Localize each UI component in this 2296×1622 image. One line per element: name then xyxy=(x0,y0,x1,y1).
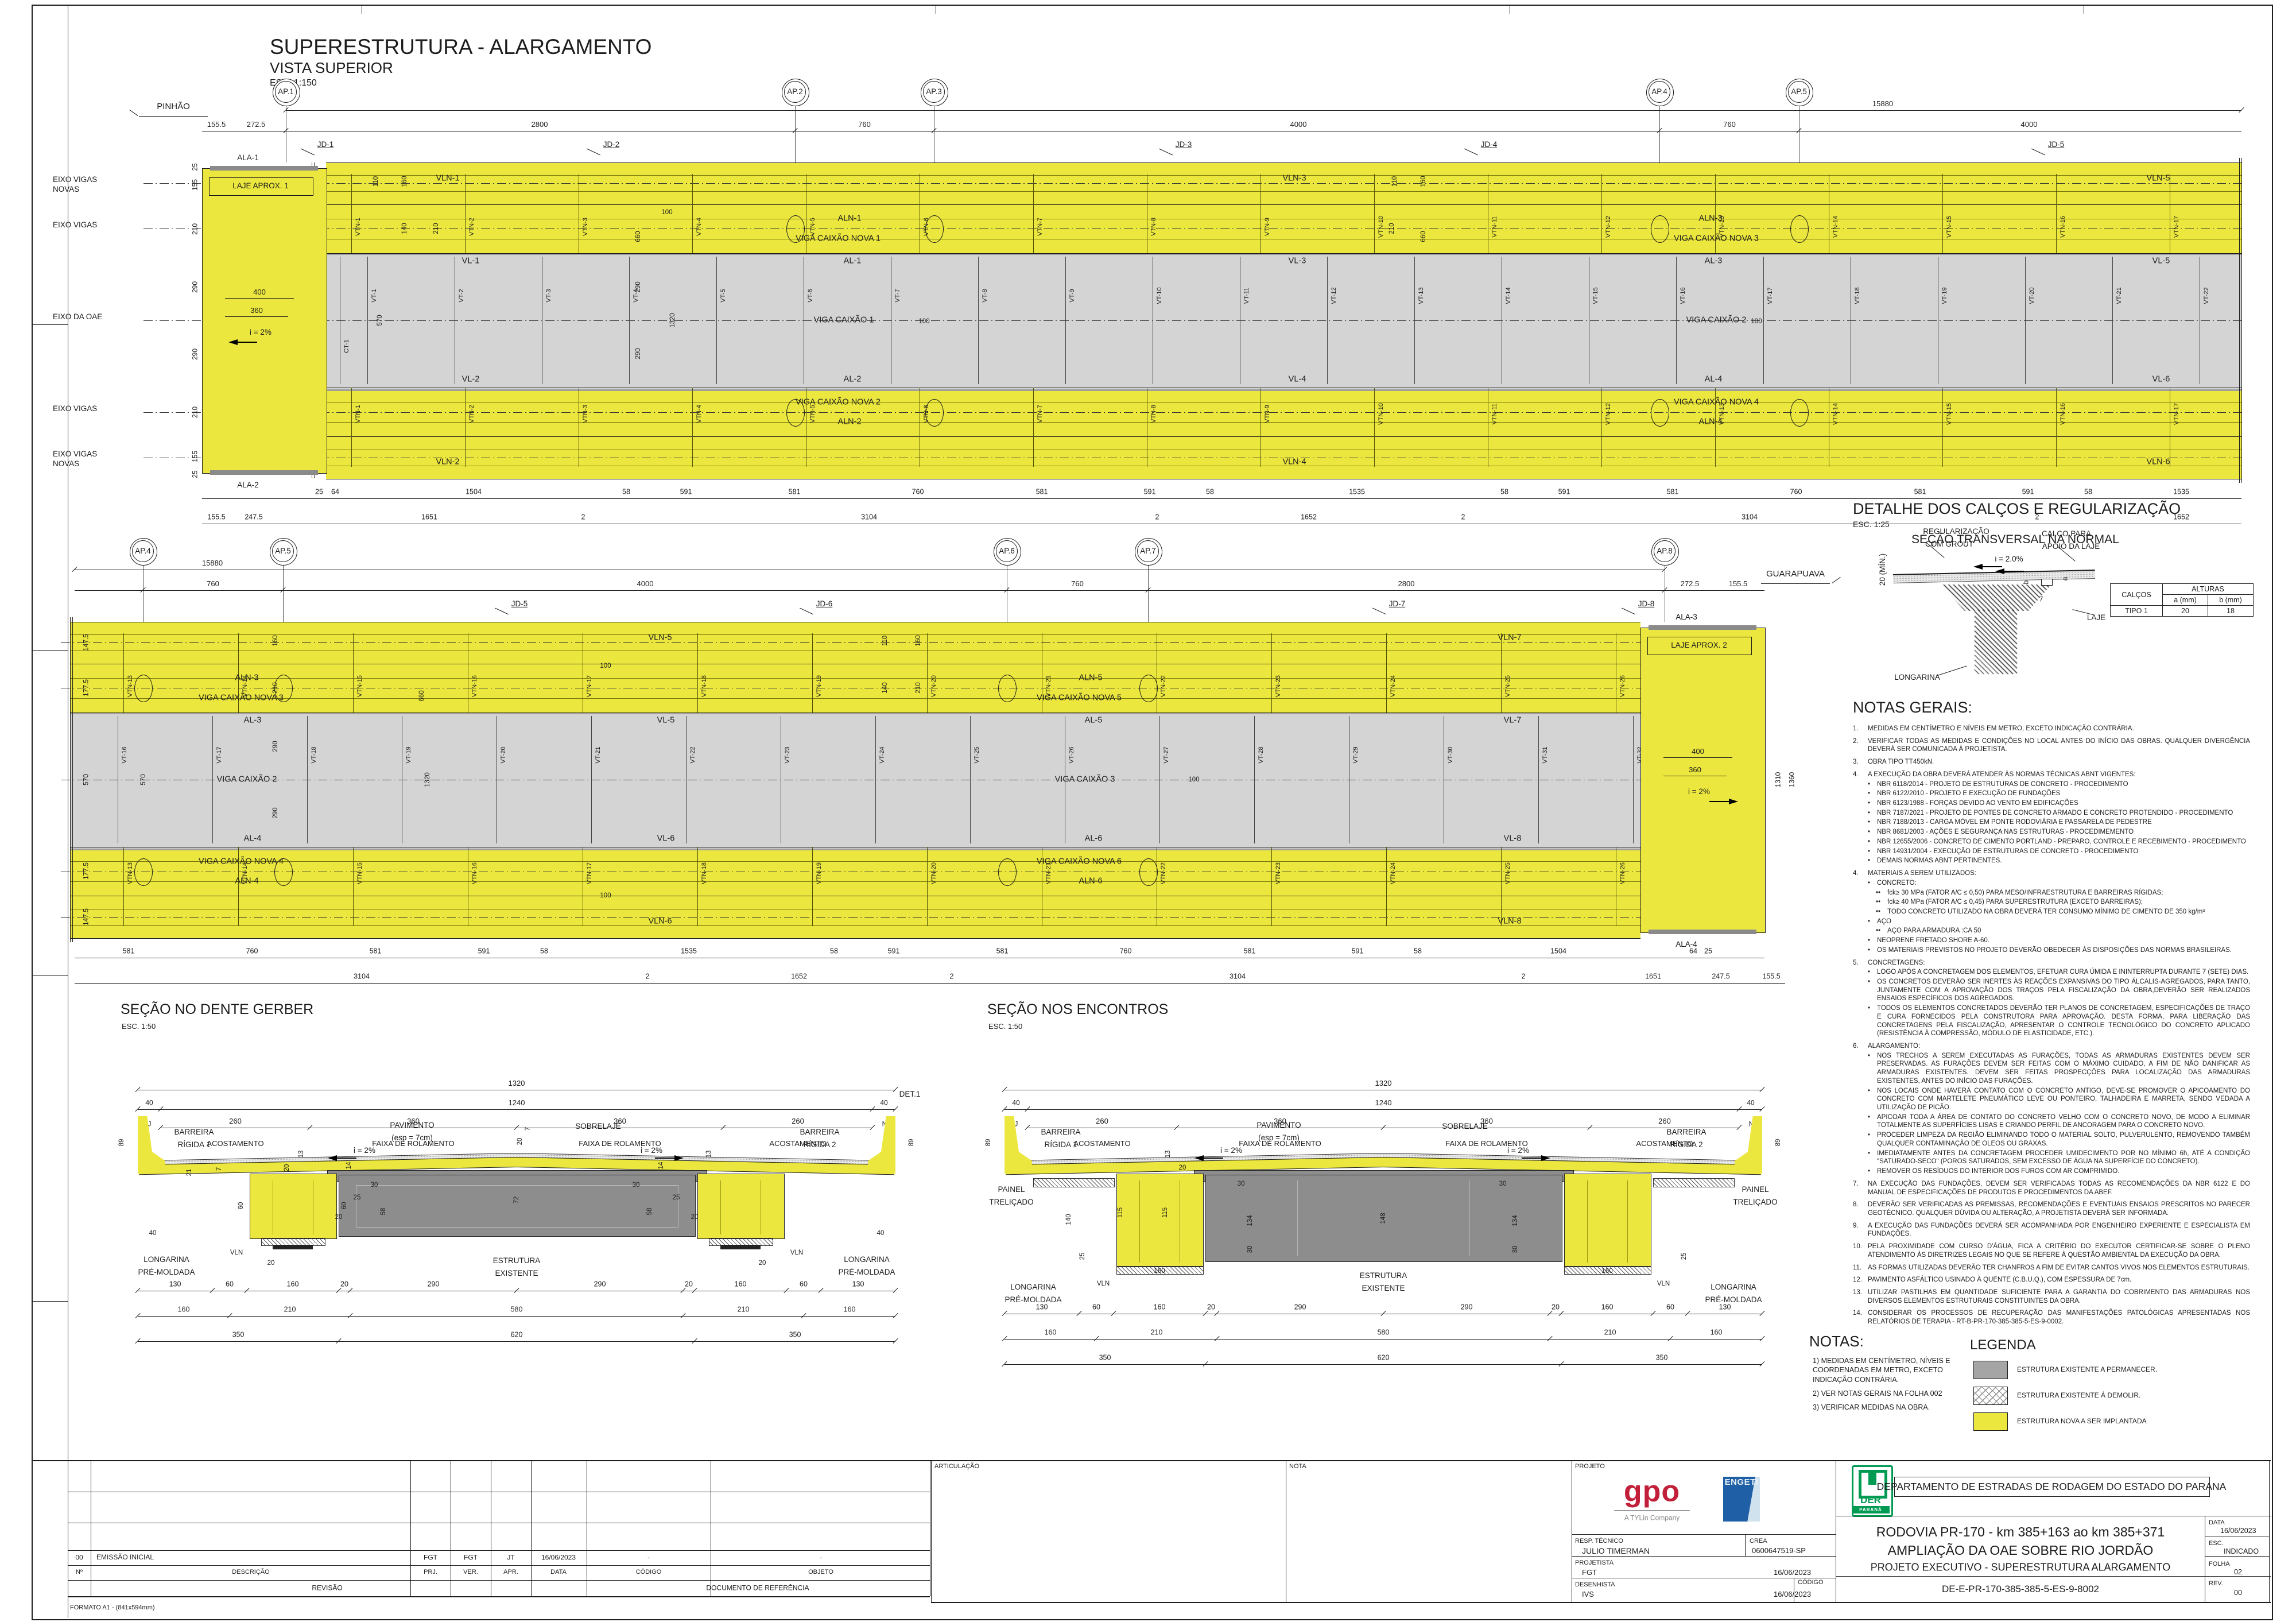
transverse-beam-label: VTN-20 xyxy=(931,675,938,697)
note-number: 10. xyxy=(1853,1242,1862,1251)
line xyxy=(1007,565,1007,622)
line xyxy=(32,650,68,651)
dim-label: 110 xyxy=(1391,176,1398,187)
line xyxy=(202,524,2241,524)
line xyxy=(283,565,284,622)
note-number: 3. xyxy=(1853,758,1859,767)
line xyxy=(686,716,687,843)
line xyxy=(68,1565,930,1566)
line xyxy=(2170,388,2170,467)
line xyxy=(2084,5,2084,14)
line xyxy=(1147,388,1147,467)
girder-label: VL-1 xyxy=(462,257,480,265)
dim-label: 760 xyxy=(1120,947,1132,955)
transverse-beam-label: VTN-3 xyxy=(583,218,589,236)
legenda-heading: LEGENDA xyxy=(1970,1338,2036,1353)
dim-label: 660 xyxy=(1420,231,1427,242)
dim-label: 400 xyxy=(1692,748,1704,756)
dim-label: 591 xyxy=(1144,488,1156,495)
line xyxy=(2056,174,2057,253)
transverse-beam-label: VTN-16 xyxy=(472,862,479,884)
transverse-beam-label: VTN-24 xyxy=(1390,862,1397,884)
line xyxy=(1261,174,1261,253)
section-label: PRÉ-MOLDADA xyxy=(138,1268,195,1276)
transverse-beam-label: VT-7 xyxy=(895,289,902,302)
bullet-marker: • xyxy=(1868,838,1870,846)
note-text: PAVIMENTO ASFÁLTICO USINADO À QUENTE (C.… xyxy=(1868,1276,2131,1283)
axis-dashdot xyxy=(61,642,1640,643)
line xyxy=(1139,1180,1140,1263)
transverse-beam-label: VTN-25 xyxy=(1505,862,1512,884)
line xyxy=(934,106,934,162)
line xyxy=(1180,1180,1180,1263)
dim-label: 100 xyxy=(1188,776,1199,783)
note-bullet: •NEOPRENE FRETADO SHORE A-60. xyxy=(1868,936,2250,945)
bullet-text: CONCRETO: xyxy=(1877,880,1917,887)
line xyxy=(286,110,2241,111)
bullet-marker: • xyxy=(1868,1052,1870,1060)
line xyxy=(587,1580,587,1596)
section-label: ESTRUTURA xyxy=(1360,1272,1407,1280)
ala-label: ALA-2 xyxy=(237,481,259,489)
abutment xyxy=(202,168,327,474)
note-number: 6. xyxy=(1853,1042,1859,1051)
dim-label: 2800 xyxy=(1398,580,1415,588)
girder-label: ALN-5 xyxy=(1079,673,1102,682)
line xyxy=(812,847,813,926)
line xyxy=(697,633,698,713)
dim-label: 4000 xyxy=(637,580,654,588)
bearing-ellipse xyxy=(1651,215,1669,243)
note-number: 4. xyxy=(1853,869,1859,878)
girder-label: VIGA CAIXÃO NOVA 3 xyxy=(199,694,284,702)
girder-label: VLN-2 xyxy=(436,458,459,466)
general-note: 10.PELA PROXIMIDADE COM CURSO D'ÁGUA, FI… xyxy=(1853,1242,2250,1259)
dim-label: 400 xyxy=(253,288,266,296)
line xyxy=(367,257,368,384)
girder-label: VLN-7 xyxy=(1498,633,1521,642)
girder-label: VLN-4 xyxy=(1282,458,1306,466)
dim-label: 581 xyxy=(1036,488,1048,495)
line xyxy=(692,174,693,253)
girder-label: VIGA CAIXÃO NOVA 5 xyxy=(1037,694,1122,702)
line xyxy=(70,634,1640,635)
bullet-marker: • xyxy=(1868,936,1870,945)
dim-label: 160 xyxy=(178,1306,190,1313)
girder-label: VIGA CAIXÃO NOVA 1 xyxy=(796,234,881,243)
dim-label: 760 xyxy=(207,580,219,588)
line xyxy=(465,388,466,467)
line xyxy=(70,678,1640,679)
dim-label: 58 xyxy=(2084,488,2092,495)
transverse-beam-label: VTN-8 xyxy=(1151,218,1158,236)
dim-label: 290 xyxy=(272,741,279,752)
transverse-beam-label: VT-22 xyxy=(690,746,697,763)
line xyxy=(1745,1534,1746,1556)
dim-label: 1320 xyxy=(669,313,676,328)
line xyxy=(1502,257,1502,384)
dim-label: 160 xyxy=(1154,1268,1165,1275)
bearing-ellipse xyxy=(1651,399,1669,427)
dim-label: 591 xyxy=(888,947,900,955)
dim-label: 290 xyxy=(428,1280,440,1288)
jd-label: JD-5 xyxy=(511,600,528,608)
dim-label: VLN xyxy=(790,1249,803,1256)
dim-label: 2 xyxy=(950,973,954,980)
transverse-beam-label: VT-17 xyxy=(216,746,223,763)
section-label: LONGARINA xyxy=(143,1256,189,1264)
girder-label: VLN-5 xyxy=(648,633,672,642)
detail-stem xyxy=(1975,610,2017,674)
dim-label: 60 xyxy=(1666,1303,1674,1311)
dim-label: 290 xyxy=(1294,1303,1306,1311)
bullet-text: NBR 6122/2010 - PROJETO E EXECUÇÃO DE FU… xyxy=(1877,790,2060,797)
transverse-beam-label: VTN-15 xyxy=(357,675,364,697)
dim-label: 89 xyxy=(1775,1139,1782,1147)
dim-label: 89 xyxy=(985,1139,992,1147)
dim-label: 130 xyxy=(1036,1303,1048,1311)
line xyxy=(402,716,402,843)
note-bullet: •IMEDIATAMENTE ANTES DA CONCRETAGEM PROC… xyxy=(1868,1149,2250,1166)
dim-label: 570 xyxy=(83,774,90,785)
ala-label: ALA-3 xyxy=(1676,613,1697,621)
line xyxy=(711,1460,711,1596)
dim-label: 30 xyxy=(633,1182,640,1189)
dim-label: 110 xyxy=(373,176,379,187)
line xyxy=(1572,1556,1836,1557)
direction-label: GUARAPUAVA xyxy=(1766,570,1825,579)
dim-label: 60 xyxy=(800,1280,808,1288)
transverse-beam-label: VTN-17 xyxy=(2174,403,2181,425)
pier-label: AP.8 xyxy=(1657,547,1673,555)
dim-label: 60 xyxy=(341,1202,348,1210)
jd-label: JD-8 xyxy=(1638,600,1655,608)
section-label: BARREIRA xyxy=(1041,1128,1080,1136)
titleblock-top xyxy=(33,1460,2271,1461)
slope-arrow-line xyxy=(655,1158,676,1159)
girder-label: VLN-1 xyxy=(436,174,459,183)
bearing-ellipse xyxy=(1139,675,1158,702)
girder-label: ALN-3 xyxy=(1698,214,1722,223)
transverse-beam-label: VTN-1 xyxy=(355,218,362,236)
girder-label: VLN-5 xyxy=(2146,174,2170,183)
girder-label: VL-6 xyxy=(2152,375,2170,384)
note-text: VERIFICAR TODAS AS MEDIDAS E CONDIÇÕES N… xyxy=(1868,738,2250,753)
dim-label: 58 xyxy=(1500,488,1508,495)
section-label: BARREIRA xyxy=(800,1128,839,1136)
line xyxy=(697,847,698,926)
line xyxy=(1261,388,1261,467)
detail-label: COM GROUT xyxy=(1925,540,1973,548)
line xyxy=(920,388,920,467)
line xyxy=(1663,757,1732,758)
section-label: EXISTENTE xyxy=(495,1269,538,1278)
jd-label: JD-5 xyxy=(2048,141,2065,149)
pier-label: AP.5 xyxy=(1791,88,1807,96)
dim-label: 160 xyxy=(1420,176,1427,187)
section-label: SOBRELAJE xyxy=(1442,1122,1488,1131)
dim-label: 40 xyxy=(880,1100,887,1107)
girder-label: AL-3 xyxy=(1705,257,1723,265)
dim-label: 15880 xyxy=(1872,100,1893,108)
dim-label: 760 xyxy=(858,121,871,129)
line xyxy=(202,131,2241,131)
axis-label: EIXO VIGAS xyxy=(53,175,97,184)
line xyxy=(326,253,2241,254)
dim-label: 260 xyxy=(1096,1117,1108,1125)
dim-label: 160 xyxy=(401,176,408,187)
abutment-slab-edge xyxy=(210,470,318,475)
section-label: PAVIMENTO xyxy=(1256,1121,1301,1129)
line xyxy=(1829,388,1829,467)
line xyxy=(1414,257,1415,384)
margin-line xyxy=(68,5,68,1618)
bullet-text: NBR 6123/1988 - FORÇAS DEVIDO AO VENTO E… xyxy=(1877,800,2078,807)
line xyxy=(2241,158,2242,483)
note-bullet: •LOGO APÓS A CONCRETAGEM DOS ELEMENTOS, … xyxy=(1868,968,2250,977)
abutment-slab-edge xyxy=(1649,625,1756,630)
legend-label: ESTRUTURA NOVA A SER IMPLANTADA xyxy=(2017,1417,2147,1425)
transverse-beam-label: VTN-12 xyxy=(1605,216,1612,238)
general-note: 4.A EXECUÇÃO DA OBRA DEVERÁ ATENDER ÀS N… xyxy=(1853,771,2250,865)
dim-label: 13 xyxy=(1165,1151,1172,1158)
dim-label: 1535 xyxy=(2173,488,2189,495)
line xyxy=(1004,1339,1762,1340)
line xyxy=(2200,257,2200,384)
note-text: OBRA TIPO TT450kN. xyxy=(1868,758,1934,765)
line xyxy=(781,716,781,843)
dim-label: 140 xyxy=(401,223,408,234)
dim-label: 20 xyxy=(1552,1303,1560,1311)
existing-structure-band xyxy=(326,253,2241,391)
dim-label: 130 xyxy=(169,1280,181,1288)
dim-label: 100 xyxy=(1751,318,1762,325)
section-label: PRÉ-MOLDADA xyxy=(1705,1296,1762,1304)
dim-label: 591 xyxy=(680,488,692,495)
line xyxy=(70,713,1640,713)
bullet-marker: •• xyxy=(1876,908,1880,916)
slope-arrow-line xyxy=(1203,1158,1223,1159)
axis-dashdot xyxy=(143,183,2241,184)
dim-label: 160 xyxy=(1601,1303,1614,1311)
dim-label: 591 xyxy=(1352,947,1364,955)
transverse-beam-label: VTN-24 xyxy=(1390,675,1397,697)
pier-label: AP.1 xyxy=(278,88,294,96)
girder-label: VIGA CAIXÃO 2 xyxy=(217,775,277,784)
axis-dashdot xyxy=(143,320,2241,321)
transverse-beam-label: VTN-7 xyxy=(1037,218,1044,236)
slope-label: i = 2% xyxy=(1220,1147,1242,1155)
line xyxy=(138,1090,895,1090)
dim-label: 7 xyxy=(525,1127,532,1131)
laje-aprox-label: LAJE APROX. 2 xyxy=(1671,641,1727,649)
calcos-table: CALÇOS ALTURAS a (mm) b (mm) TIPO 1 20 1… xyxy=(2110,583,2254,617)
transverse-beam-label: VT-16 xyxy=(122,746,129,763)
bullet-marker: • xyxy=(1868,780,1870,789)
detail-label: CALÇO PARA xyxy=(2042,530,2091,538)
transverse-beam-label: VTN-14 xyxy=(1833,216,1840,238)
dim-label: 25 xyxy=(315,488,323,495)
girder-label: VIGA CAIXÃO 1 xyxy=(814,316,874,324)
transverse-beam-label: VT-19 xyxy=(406,746,413,763)
dim-label: 581 xyxy=(123,947,135,955)
dim-label: 155 xyxy=(192,179,199,191)
dim-label: 30 xyxy=(1499,1180,1507,1187)
bullet-marker: • xyxy=(1868,1131,1870,1140)
dim-label: 272.5 xyxy=(247,121,266,129)
transverse-beam-label: VTN-19 xyxy=(816,862,823,884)
dim-label: 570 xyxy=(140,774,147,785)
pier-label: AP.6 xyxy=(999,547,1015,555)
line xyxy=(583,633,583,713)
dim-label: 14 xyxy=(346,1162,352,1170)
transverse-beam-label: VT-27 xyxy=(1163,746,1170,763)
line xyxy=(1286,1460,1286,1602)
line xyxy=(138,1341,895,1342)
dim-label: 64 xyxy=(1689,947,1697,955)
girder-label: VIGA CAIXÃO NOVA 4 xyxy=(1674,398,1759,407)
line xyxy=(70,698,1640,699)
note-bullet: ••AÇO PARA ARMADURA :CA 50 xyxy=(1868,927,2250,935)
line xyxy=(1271,847,1272,926)
dim-label: 580 xyxy=(511,1306,523,1313)
ala-label: ALA-1 xyxy=(237,154,259,162)
transverse-beam-label: VT-23 xyxy=(785,746,792,763)
line xyxy=(1572,1534,1836,1535)
slope-label: i = 2% xyxy=(250,328,272,336)
line xyxy=(930,1460,930,1596)
dim-label: 260 xyxy=(1658,1117,1671,1125)
dim-label: 89 xyxy=(118,1139,125,1147)
transverse-beam-label: VTN-15 xyxy=(357,862,364,884)
bullet-text: OS MATERIAIS PREVISTOS NO PROJETO DEVERÃ… xyxy=(1877,947,2232,954)
dim-label: 100 xyxy=(600,663,611,669)
axis-label: EIXO VIGAS xyxy=(53,450,97,458)
dim-label: 20 xyxy=(691,1214,699,1221)
bullet-marker: •• xyxy=(1876,898,1880,907)
line xyxy=(1147,174,1147,253)
note-number: 7. xyxy=(1853,1180,1859,1189)
bullet-marker: • xyxy=(1868,879,1870,888)
dim-label: 155.5 xyxy=(207,121,226,129)
section-label: PAINEL xyxy=(998,1186,1025,1194)
line xyxy=(2112,257,2113,384)
detail-title: DETALHE DOS CALÇOS E REGULARIZAÇÃO xyxy=(1853,501,2181,518)
dim-label: 160 xyxy=(1711,1329,1723,1336)
transverse-beam-label: VTN-22 xyxy=(1161,675,1168,697)
detail-label: LONGARINA xyxy=(1894,673,1940,682)
detail-label: 20 (MÍN.) xyxy=(1879,553,1887,586)
dim-label: 60 xyxy=(226,1280,234,1288)
dim-label: 147.5 xyxy=(83,908,90,926)
dim-label: 2 xyxy=(1461,513,1465,521)
dim-label: 40 xyxy=(145,1100,153,1107)
line xyxy=(138,1109,895,1110)
bullet-text: REMOVER OS RESÍDUOS DO INTERIOR DOS FURO… xyxy=(1877,1168,2119,1175)
section-label: TRELIÇADO xyxy=(989,1198,1033,1206)
dim-label: 3104 xyxy=(1230,973,1246,980)
dim-label: 115 xyxy=(1117,1207,1124,1218)
line xyxy=(225,316,288,317)
note-number: 2. xyxy=(1853,737,1859,746)
dim-label: 40 xyxy=(1012,1100,1019,1107)
slope-arrow-line xyxy=(1981,566,2002,567)
girder-label: AL-6 xyxy=(1085,834,1103,843)
transverse-beam-label: VT-24 xyxy=(879,746,886,763)
transverse-beam-label: VTN-11 xyxy=(1492,216,1499,237)
girder-label: VIGA CAIXÃO 2 xyxy=(1686,316,1747,324)
dim-label: 7 xyxy=(216,1167,223,1171)
bullet-text: NBR 12655/2006 - CONCRETO DE CIMENTO POR… xyxy=(1877,838,2246,845)
bullet-text: NBR 7187/2021 - PROJETO DE PONTES DE CON… xyxy=(1877,810,2233,816)
abutment xyxy=(1640,628,1766,933)
dim-label: 1320 xyxy=(1375,1079,1392,1087)
dim-label: 2 xyxy=(1522,973,1526,980)
girder-label: AL-1 xyxy=(844,257,862,265)
line xyxy=(591,716,592,843)
dim-label: 155 xyxy=(192,451,199,462)
dim-label: 581 xyxy=(996,947,1009,955)
line xyxy=(978,257,979,384)
jd-label: JD-2 xyxy=(603,141,620,149)
dim-label: 4000 xyxy=(2021,121,2038,129)
dim-label: 58 xyxy=(380,1208,387,1215)
line xyxy=(497,716,497,843)
axis-dashdot xyxy=(61,917,1640,918)
bearing-ellipse xyxy=(134,858,153,886)
dim-label: 177.5 xyxy=(83,862,90,880)
line xyxy=(1676,257,1677,384)
note-number: 14. xyxy=(1853,1309,1862,1318)
line xyxy=(1065,257,1066,384)
transverse-beam-label: VTN-5 xyxy=(810,405,817,423)
line xyxy=(2239,158,2240,483)
line xyxy=(1469,1180,1470,1256)
dim-label: 2 xyxy=(2035,513,2039,521)
bullet-marker: •• xyxy=(1876,927,1880,935)
note-number: 5. xyxy=(1853,959,1859,967)
line xyxy=(931,1602,2271,1603)
line xyxy=(1633,716,1634,843)
dim-label: 30 xyxy=(1512,1246,1519,1253)
notas-gerais-heading: NOTAS GERAIS: xyxy=(1853,699,1972,717)
line xyxy=(1627,1180,1628,1263)
dim-label: 14 xyxy=(658,1162,665,1170)
dim-label: 89 xyxy=(908,1139,915,1147)
section-label: SOBRELAJE xyxy=(575,1122,621,1131)
bullet-text: NEOPRENE FRETADO SHORE A-60. xyxy=(1877,937,1989,944)
bullet-text: PROCEDER LIMPEZA DA REGIÃO ELIMINANDO TO… xyxy=(1877,1132,2250,1147)
bullet-marker: • xyxy=(1868,1004,1870,1013)
notas-gerais-list: 1.MEDIDAS EM CENTÍMETRO E NÍVEIS EM METR… xyxy=(1853,725,2250,1330)
bullet-text: AÇO xyxy=(1877,918,1891,925)
line xyxy=(326,402,2241,402)
line xyxy=(70,664,1640,664)
dim-label: 290 xyxy=(192,281,199,293)
note-bullet: •AÇO xyxy=(1868,918,2250,926)
transverse-beam-label: VTN-10 xyxy=(1378,216,1385,238)
note-item: 1) MEDIDAS EM CENTÍMETRO, NÍVEIS E COORD… xyxy=(1813,1356,1956,1384)
dim-label: 2 xyxy=(1155,513,1159,521)
bullet-text: fck≥ 30 MPa (FATOR A/C ≤ 0,50) PARA MESO… xyxy=(1887,889,2163,896)
dim-label: 134 xyxy=(1512,1215,1519,1226)
dim-label: 580 xyxy=(1378,1329,1390,1336)
girder-label: ALN-4 xyxy=(235,877,258,885)
line xyxy=(1386,847,1387,926)
dim-label: 260 xyxy=(229,1117,242,1125)
note-item: 2) VER NOTAS GERAIS NA FOLHA 002 xyxy=(1813,1389,1956,1398)
dim-label: 581 xyxy=(789,488,801,495)
